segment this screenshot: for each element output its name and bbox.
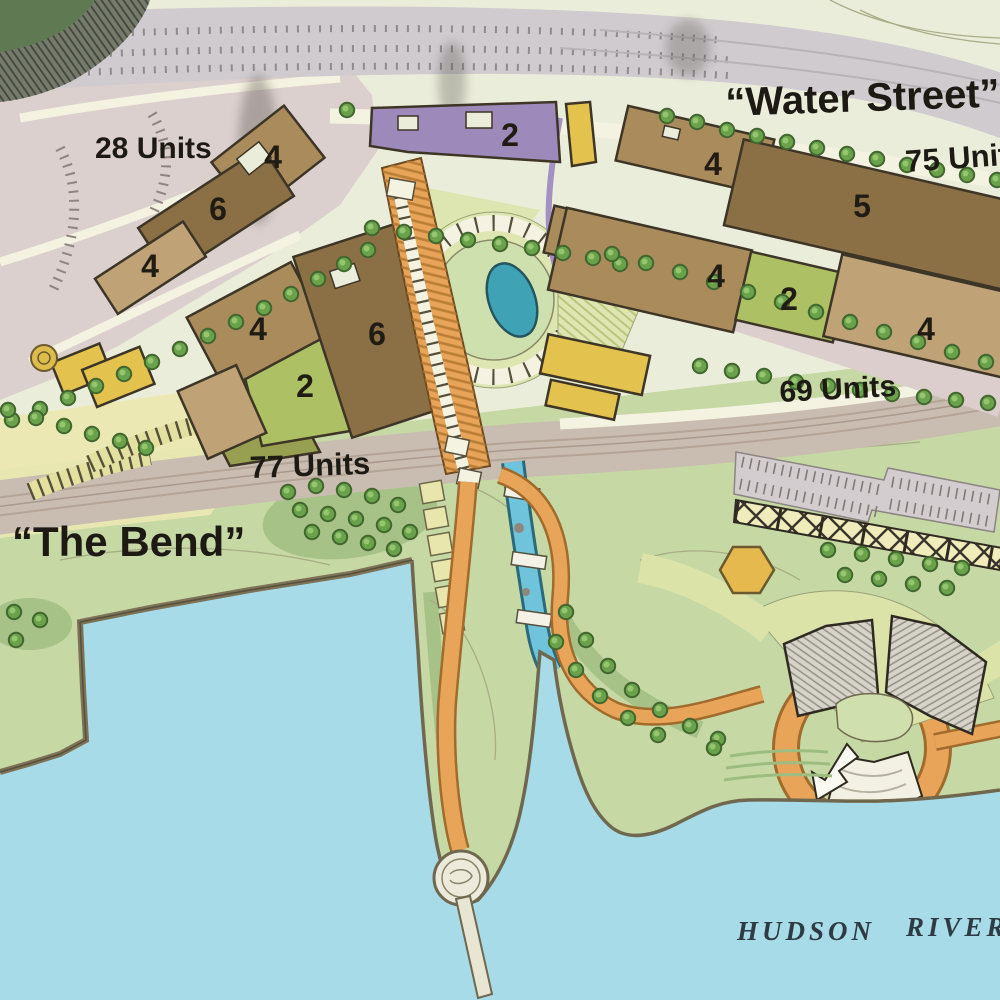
stage-lawn [836, 694, 913, 742]
terrace-step [427, 532, 452, 556]
building-yellow-strip [566, 102, 596, 166]
roof-detail [466, 112, 492, 128]
slope-shadow [666, 20, 710, 76]
terrace-step [419, 480, 444, 504]
label-parcel-ne-2: 2 [780, 281, 798, 317]
label-hudson: HUDSON [736, 916, 875, 946]
boulder [514, 523, 524, 533]
label-building-ne-4c: 4 [917, 311, 935, 347]
label-building-purple-2: 2 [501, 117, 519, 153]
stair-landing [387, 178, 416, 200]
label-parcel-center-2: 2 [296, 368, 314, 404]
label-77-units: 77 Units [249, 446, 371, 485]
label-building-ne-4a: 4 [704, 146, 722, 182]
label-building-center-6: 6 [368, 316, 386, 352]
boulder [522, 588, 530, 596]
label-the-bend: “The Bend” [12, 518, 245, 565]
bridge-landing [445, 436, 470, 456]
roof-detail [398, 116, 418, 130]
label-building-center-4: 4 [249, 311, 267, 347]
circular-court [31, 345, 57, 371]
label-building-nw-4a: 4 [264, 139, 282, 175]
site-plan-map: “Water Street” 75 Units 28 Units 69 Unit… [0, 0, 1000, 1000]
label-75-units: 75 Units [904, 136, 1000, 179]
label-28-units: 28 Units [95, 132, 212, 165]
label-building-ne-5: 5 [853, 188, 871, 224]
label-69-units: 69 Units [779, 370, 897, 409]
label-building-nw-4b: 4 [141, 248, 159, 284]
label-river: RIVER [905, 912, 1000, 942]
label-building-ne-4b: 4 [707, 258, 725, 294]
terrace-step [423, 506, 448, 530]
label-building-nw-6: 6 [209, 191, 227, 227]
master-plan-canvas: “Water Street” 75 Units 28 Units 69 Unit… [0, 0, 1000, 1000]
